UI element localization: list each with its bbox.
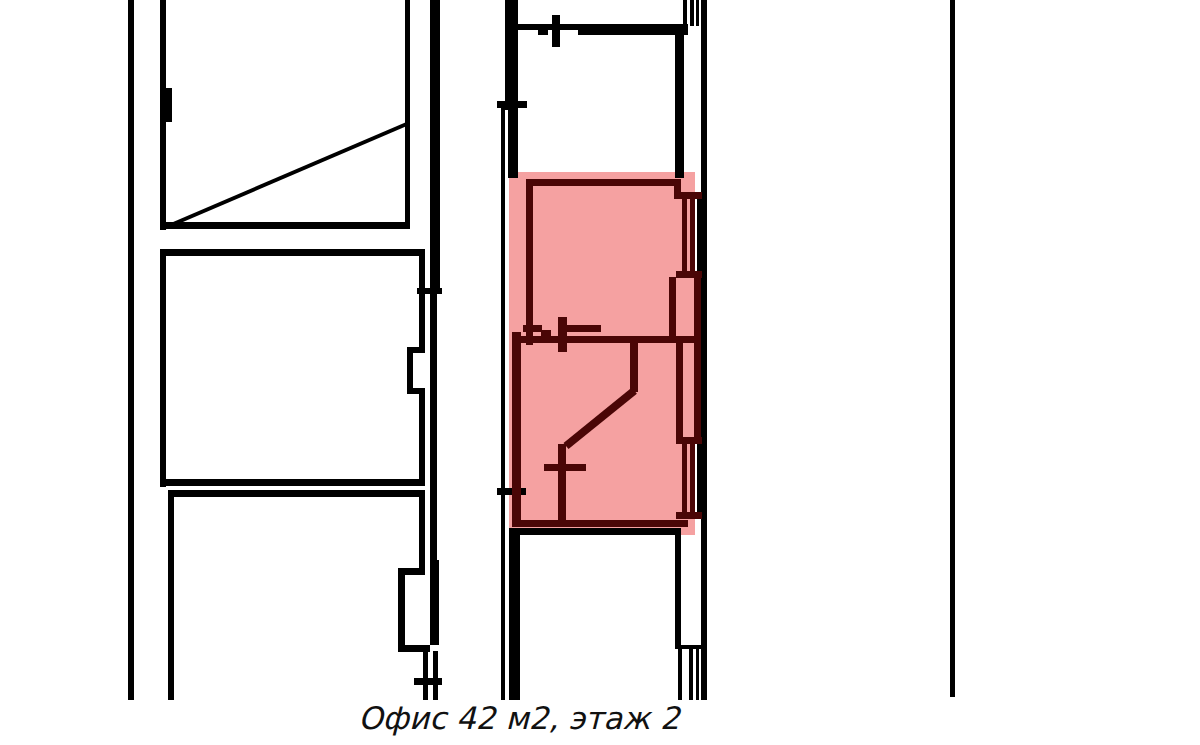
wall-segment xyxy=(683,0,687,26)
wall-segment xyxy=(512,332,521,527)
wall-segment xyxy=(430,294,437,560)
wall-segment xyxy=(678,648,682,700)
wall-segment xyxy=(690,0,694,26)
wall-segment xyxy=(538,30,548,35)
wall-segment xyxy=(163,122,407,230)
wall-segment xyxy=(689,648,693,700)
wall-segment xyxy=(552,15,560,47)
wall-segment xyxy=(694,277,701,444)
wall-segment xyxy=(168,490,425,497)
wall-segment xyxy=(676,192,702,199)
wall-segment xyxy=(676,437,702,444)
wall-segment xyxy=(701,648,707,700)
wall-segment xyxy=(414,678,442,685)
wall-segment xyxy=(501,103,505,700)
wall-segment xyxy=(128,0,134,700)
wall-segment xyxy=(405,0,410,228)
wall-segment xyxy=(675,528,681,648)
wall-segment xyxy=(523,325,542,332)
wall-segment xyxy=(423,651,428,700)
wall-segment xyxy=(696,648,699,700)
wall-segment xyxy=(526,179,681,186)
wall-segment xyxy=(690,199,695,271)
wall-segment xyxy=(676,512,702,519)
wall-segment xyxy=(419,249,425,352)
wall-segment xyxy=(512,336,701,343)
wall-segment xyxy=(512,520,688,527)
wall-segment xyxy=(578,30,688,35)
wall-segment xyxy=(160,249,166,487)
wall-segment xyxy=(505,0,518,110)
wall-segment xyxy=(676,338,683,444)
wall-segment xyxy=(419,490,425,573)
wall-segment xyxy=(669,277,676,338)
wall-segment xyxy=(690,444,695,512)
wall-segment xyxy=(433,651,438,700)
wall-segment xyxy=(696,0,699,26)
wall-segment xyxy=(160,222,410,229)
wall-segment xyxy=(398,568,405,651)
wall-segment xyxy=(508,110,518,178)
wall-segment xyxy=(682,199,687,271)
wall-segment xyxy=(675,30,684,178)
floor-plan-canvas: Офис 42 м2, этаж 2 xyxy=(0,0,1200,745)
wall-segment xyxy=(160,249,425,256)
wall-segment xyxy=(950,0,955,697)
floor-plan xyxy=(0,0,1200,745)
wall-segment xyxy=(160,479,425,486)
wall-segment xyxy=(419,388,425,486)
wall-segment xyxy=(165,88,172,122)
wall-segment xyxy=(509,528,520,700)
wall-segment xyxy=(430,0,440,292)
wall-segment xyxy=(513,528,678,535)
wall-segment xyxy=(558,444,566,527)
wall-segment xyxy=(682,444,687,512)
wall-segment xyxy=(430,560,439,645)
wall-segment xyxy=(567,325,601,332)
wall-segment xyxy=(407,347,413,394)
wall-segment xyxy=(701,0,707,648)
wall-segment xyxy=(558,317,567,352)
wall-segment xyxy=(630,338,638,392)
wall-segment xyxy=(544,464,586,471)
highlighted-office-area xyxy=(509,172,695,535)
wall-segment xyxy=(526,179,533,345)
wall-segment xyxy=(497,101,527,108)
plan-caption: Офис 42 м2, этаж 2 xyxy=(0,701,1038,735)
wall-segment xyxy=(168,490,174,700)
wall-segment xyxy=(697,444,701,512)
wall-segment xyxy=(697,199,701,271)
